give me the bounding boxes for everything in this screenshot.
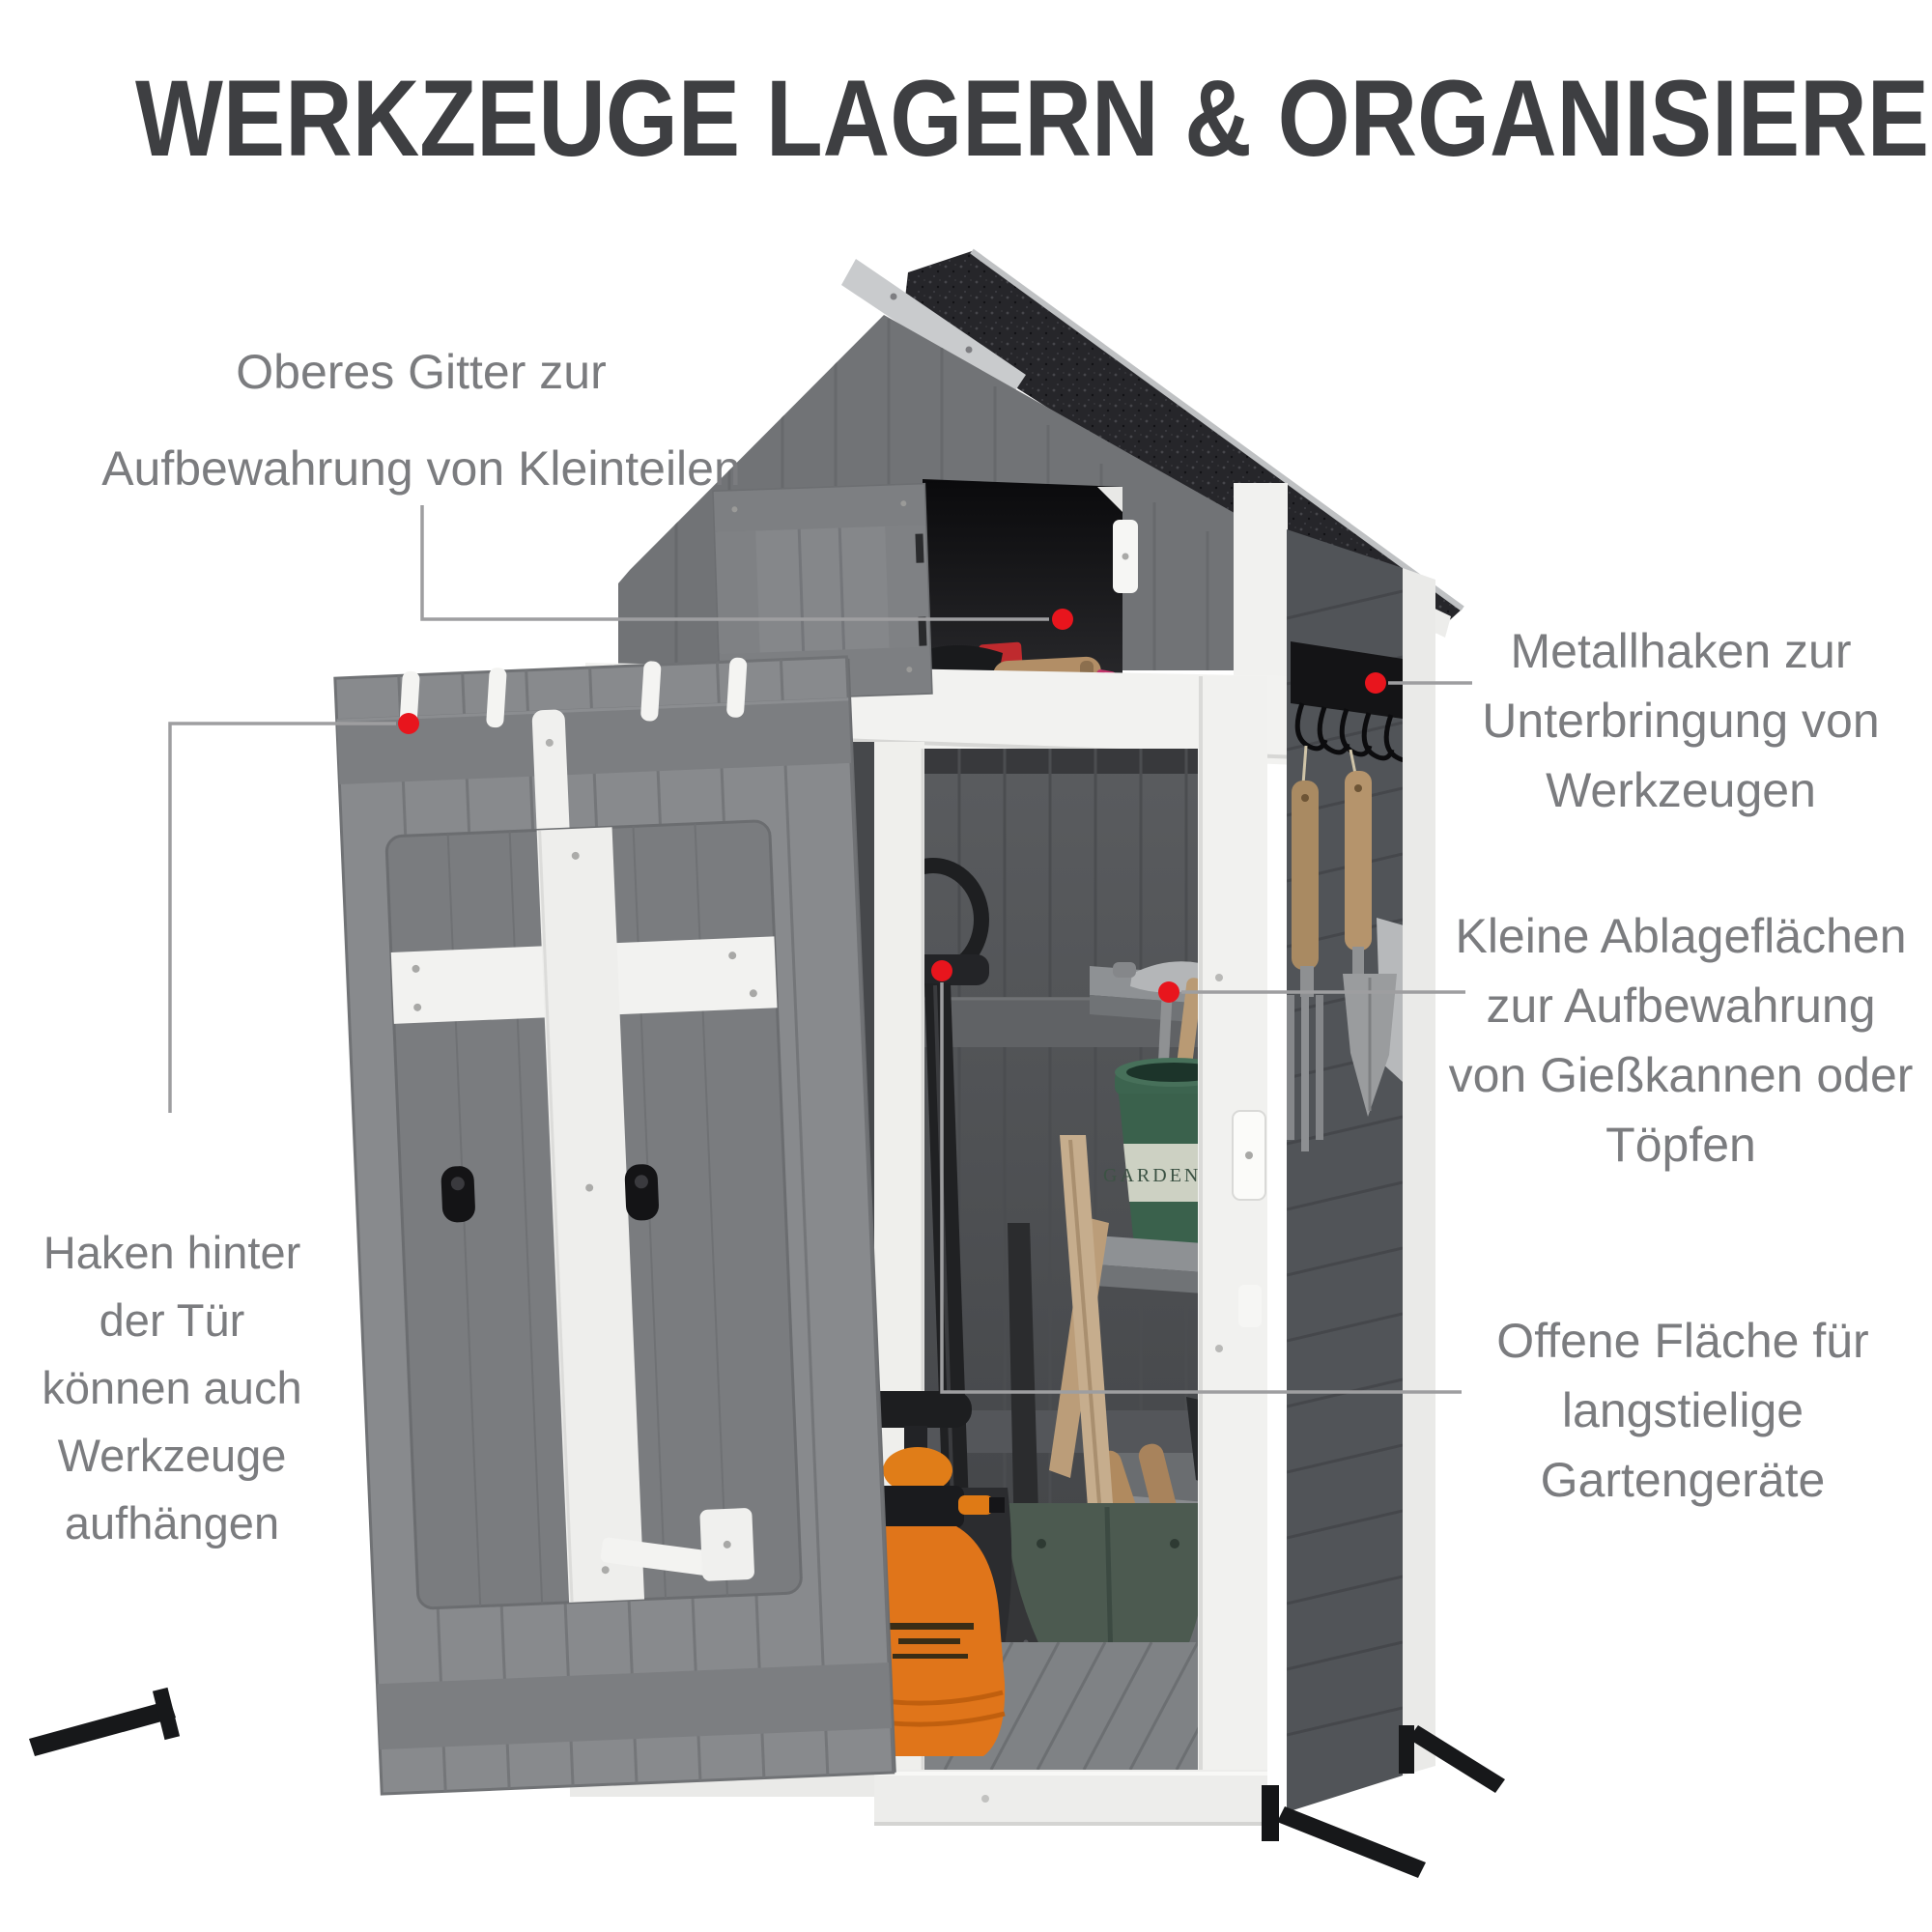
annotation-line: Gartengeräte xyxy=(1468,1445,1897,1515)
base-front xyxy=(874,1770,1267,1826)
callout-dot-oberes-gitter xyxy=(1052,609,1073,630)
latch-screw xyxy=(1122,554,1129,560)
annotation-line: Werkzeuge xyxy=(10,1422,334,1490)
annotation-line: Kleine Ablageflächen xyxy=(1447,901,1915,971)
product-infographic: GARDENING xyxy=(0,0,1932,1932)
back-right-post xyxy=(1403,568,1435,1776)
hanging-tool-handle xyxy=(1345,771,1372,951)
annotation-haken-tuer: Haken hinter der Tür können auch Werkzeu… xyxy=(10,1219,334,1557)
annotation-line: Unterbringung von xyxy=(1463,686,1898,755)
annotation-oberes-gitter: Oberes Gitter zur Aufbewahrung von Klein… xyxy=(83,324,759,517)
annotation-line: aufhängen xyxy=(10,1490,334,1557)
annotation-metallhaken: Metallhaken zur Unterbringung von Werkze… xyxy=(1463,616,1898,825)
annotation-line: der Tür xyxy=(10,1287,334,1354)
top-compartment xyxy=(918,479,1122,701)
callout-dot-kleine-ablage xyxy=(1158,981,1179,1003)
callout-dot-metallhaken xyxy=(1365,672,1386,694)
page-title: WERKZEUGE LAGERN & ORGANISIEREN xyxy=(135,56,1797,181)
annotation-line: Töpfen xyxy=(1447,1110,1915,1179)
annotation-line: Metallhaken zur xyxy=(1463,616,1898,686)
annotation-line: zur Aufbewahrung xyxy=(1447,971,1915,1040)
annotation-line: Oberes Gitter zur xyxy=(83,324,759,420)
annotation-line: Haken hinter xyxy=(10,1219,334,1287)
door-latch-lower xyxy=(1238,1285,1262,1327)
callout-dot-haken-tuer xyxy=(398,713,419,734)
annotation-line: Offene Fläche für xyxy=(1468,1306,1897,1376)
ridge-screw xyxy=(891,294,897,300)
callout-dot-offene-flaeche xyxy=(931,960,952,981)
annotation-line: können auch xyxy=(10,1354,334,1422)
doorway-right-post xyxy=(1198,676,1267,1821)
annotation-line: Aufbewahrung von Kleinteilen xyxy=(83,420,759,517)
annotation-line: von Gießkannen oder xyxy=(1447,1040,1915,1110)
ridge-screw xyxy=(966,347,973,354)
front-right-post-upper xyxy=(1234,483,1288,681)
side-wall xyxy=(1287,529,1435,1812)
shed-door xyxy=(335,652,896,1794)
annotation-offene-flaeche: Offene Fläche für langstielige Gartenger… xyxy=(1468,1306,1897,1515)
annotation-kleine-ablage: Kleine Ablageflächen zur Aufbewahrung vo… xyxy=(1447,901,1915,1179)
foot-right-front xyxy=(1277,1806,1426,1878)
foot-left xyxy=(29,1700,176,1756)
annotation-line: Werkzeugen xyxy=(1463,755,1898,825)
hanging-fork-handle xyxy=(1292,781,1319,970)
annotation-line: langstielige xyxy=(1468,1376,1897,1445)
sprayer-nozzle xyxy=(958,1495,993,1515)
